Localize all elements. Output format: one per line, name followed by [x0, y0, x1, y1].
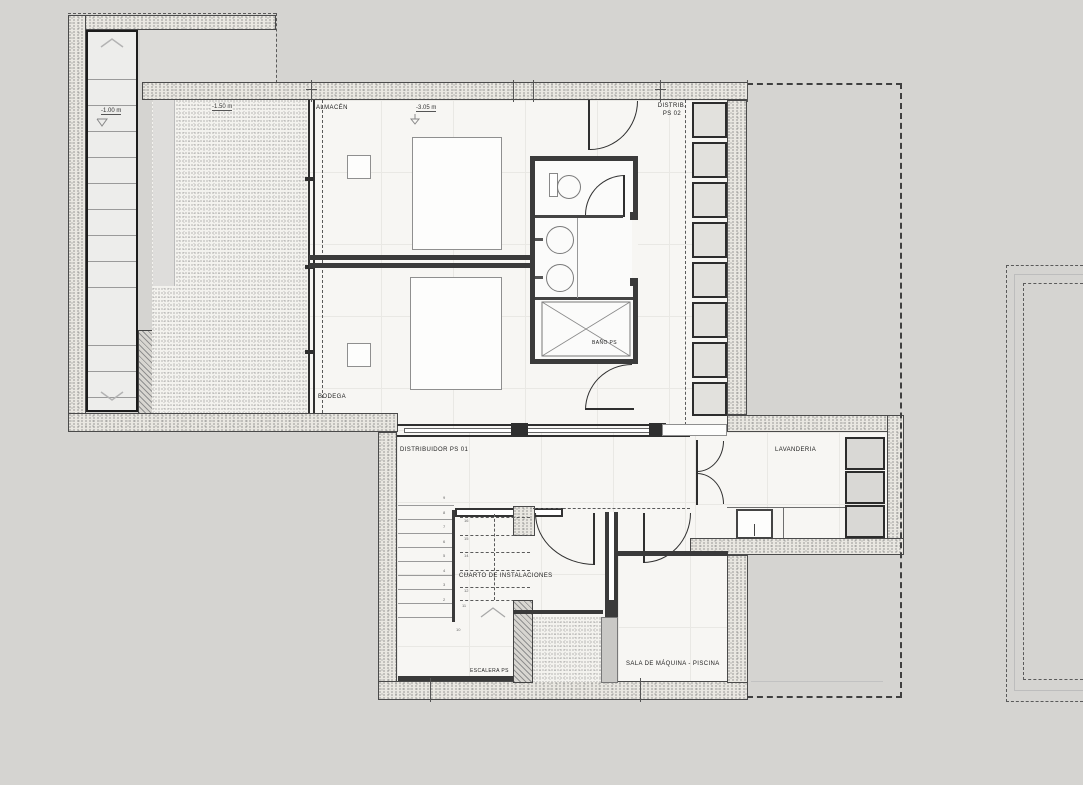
bodega-post: [347, 343, 371, 367]
wall-north-main: [142, 82, 748, 100]
grid-tick: [655, 89, 666, 90]
stair-upper-tread-dashed: [460, 517, 530, 518]
exterior-stair-shaft: [86, 30, 138, 412]
terrace-outline-dashed: [747, 83, 902, 698]
room-label-sala-maquina: SALA DE MÁQUINA - PISCINA: [626, 661, 720, 668]
courtyard-planter-strip: [153, 100, 175, 286]
tread-number: 7: [443, 525, 445, 529]
tread-number: 15: [464, 537, 468, 541]
closet-swing-line-dashed: [685, 100, 686, 430]
chevron-down-icon: [98, 390, 126, 402]
room-label-lavanderia: LAVANDERIA: [775, 447, 816, 454]
level-label-interior: -3.05 m: [416, 105, 436, 112]
room-label-almacen: ALMACÉN: [316, 105, 348, 112]
pool-outline-inner-top: [1023, 283, 1083, 284]
closet-shelf: [692, 262, 727, 298]
chevron-up-icon: [98, 37, 126, 49]
bathroom-block: [530, 156, 638, 364]
wall-stair-enclosure-left: [68, 15, 86, 431]
site-boundary-dashed-corner: [276, 13, 277, 83]
wall-west-lower: [378, 432, 397, 700]
ceiling-change-dashed: [533, 508, 690, 509]
pool-outline-inner-left: [1023, 283, 1024, 680]
pool-outline-outer-top: [1006, 265, 1083, 266]
room-label-bodega: BODEGA: [318, 394, 346, 401]
toilet-door-arc: [585, 175, 625, 215]
grid-tick: [513, 80, 514, 102]
tread-number: 12: [464, 589, 468, 593]
partition-glass-pane: [404, 428, 682, 433]
almacen-post: [347, 155, 371, 179]
wall-stub: [513, 506, 535, 536]
closet-shelf: [692, 182, 727, 218]
wall-courtyard-south: [68, 413, 398, 432]
pool-outline-outer-bottom: [1006, 701, 1083, 702]
stair-upper-tread-dashed: [460, 552, 530, 553]
toilet-icon: [557, 175, 581, 199]
hall-cabinet: [662, 424, 727, 436]
tread-number: 16: [464, 519, 468, 523]
patio-gravel: [533, 617, 601, 682]
grid-tick: [306, 89, 317, 90]
closet-shelf: [692, 302, 727, 338]
almacen-rack: [412, 137, 502, 250]
closet-shelf: [692, 342, 727, 378]
wall-south-main: [378, 681, 748, 700]
pool-outline-outer-left: [1006, 265, 1007, 702]
room-label-distribuidor-ps01: DISTRIBUIDOR PS 01: [400, 447, 468, 454]
stair-spine-wall: [452, 510, 455, 622]
door-jamb: [630, 212, 638, 220]
vanity-edge: [577, 218, 578, 298]
courtyard-gravel: [152, 100, 309, 413]
tread-number: 2: [443, 598, 445, 602]
closet-shelf: [692, 102, 727, 138]
level-label-courtyard: -1.50 m: [212, 104, 232, 111]
bathroom-partition-toilet: [535, 215, 623, 218]
terrace-faint-line: [751, 681, 883, 682]
wall-cuarto-sala: [605, 512, 618, 602]
grid-tick: [533, 80, 534, 102]
stair-south-wall: [398, 676, 532, 681]
chevron-up-icon: [478, 606, 508, 619]
pool-outline-inner-bottom: [1023, 679, 1083, 680]
level-label-exterior-stair: -1.00 m: [101, 108, 121, 115]
grid-tick: [747, 80, 748, 102]
wall-patio-east: [601, 617, 618, 683]
spot-level-icon: [96, 118, 108, 128]
room-label-distrib-ps02-line2: PS 02: [652, 111, 692, 118]
stair-lower-flight: [398, 492, 454, 622]
wall-east-upper: [727, 100, 747, 415]
closet-shelf: [692, 222, 727, 258]
grid-tick: [311, 80, 312, 102]
sink-icon: [546, 226, 574, 254]
glazing-mullion: [305, 177, 315, 181]
sink-wall-mount: [535, 238, 543, 241]
wall-sala-east: [727, 555, 748, 683]
tread-number: 4: [443, 569, 445, 573]
tread-number: 8: [443, 511, 445, 515]
tread-number: 9: [443, 496, 445, 500]
wall-sala-north: [618, 551, 728, 556]
closet-shelf: [692, 382, 727, 416]
site-boundary-dashed-top: [68, 13, 276, 14]
grid-tick: [640, 678, 641, 702]
sink-wall-mount: [535, 276, 543, 279]
shower-icon: [541, 301, 631, 357]
grid-tick: [430, 678, 431, 702]
room-label-distrib-ps02-line1: DISTRIB.: [652, 103, 692, 110]
stair-upper-tread-dashed: [460, 570, 530, 571]
partition-glass-top-line: [397, 424, 690, 426]
room-label-escalera-ps: ESCALERA PS: [470, 668, 509, 674]
toilet-door-leaf: [623, 175, 625, 217]
room-label-bano: BAÑO PS: [592, 340, 617, 346]
door-leaf-bodega: [585, 408, 634, 410]
wall-stair-enclosure-top: [68, 15, 276, 30]
glazing-mullion: [305, 350, 315, 354]
partition-glass-bottom-line: [397, 435, 690, 437]
door-leaf-cuarto: [593, 513, 595, 565]
door-leaf-almacen: [588, 100, 590, 150]
pool-outline-mid: [1014, 274, 1083, 691]
floor-plan-canvas: { "drawing": { "kind": "architectural ba…: [0, 0, 1083, 785]
closet-shelf: [692, 142, 727, 178]
grade-platform: [140, 30, 276, 83]
grid-tick: [660, 80, 661, 102]
bodega-rack: [410, 277, 502, 390]
tread-number: 3: [443, 583, 445, 587]
partition-pillar: [511, 423, 528, 437]
tread-number: 6: [443, 540, 445, 544]
door-jamb: [630, 278, 638, 286]
spot-level-icon: [409, 113, 421, 125]
stair-upper-tread-dashed: [460, 535, 530, 536]
tread-number: 5: [443, 554, 445, 558]
bathroom-door-opening: [632, 220, 638, 278]
tread-number: 10: [456, 628, 460, 632]
exterior-stair-treads-upper: [88, 54, 136, 289]
tread-number: 11: [462, 604, 466, 608]
tread-number: 14: [464, 554, 468, 558]
wall-jog: [605, 600, 618, 617]
bathroom-partition-shower: [535, 297, 633, 300]
sink-icon: [546, 264, 574, 292]
stair-upper-tread-dashed: [460, 587, 530, 588]
wall-patio-north: [513, 610, 603, 614]
room-label-cuarto-instalaciones: CUARTO DE INSTALACIONES: [459, 573, 553, 580]
